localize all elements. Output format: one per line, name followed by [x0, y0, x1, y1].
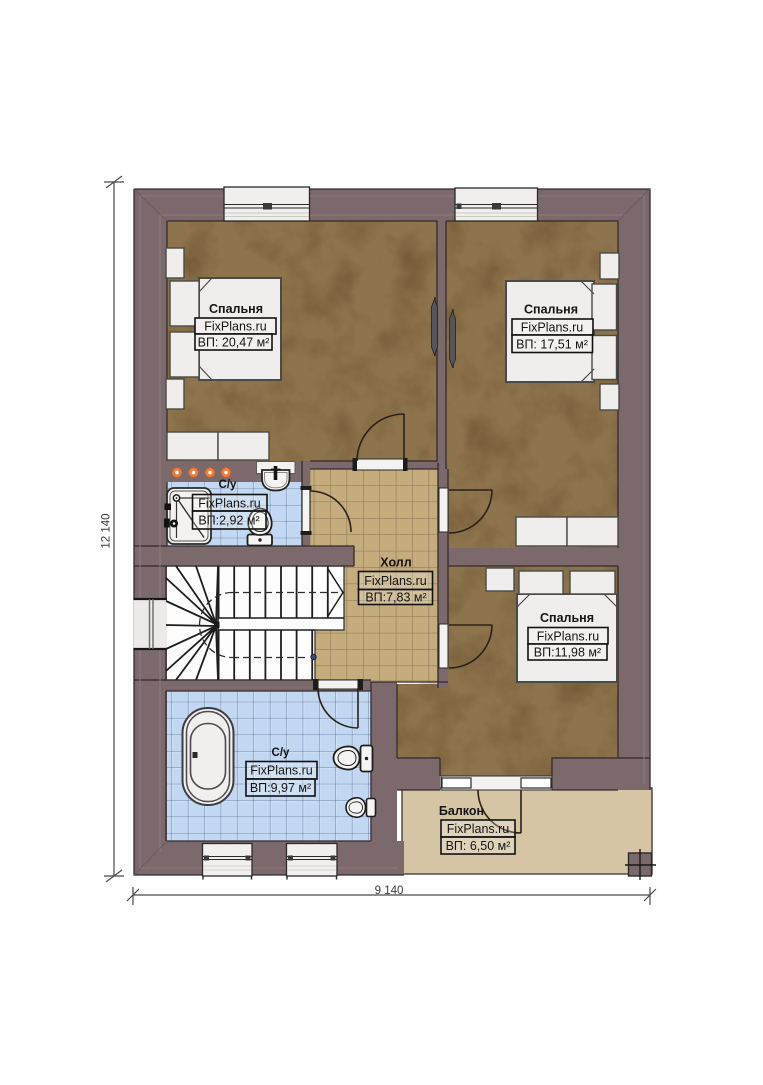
svg-text:С/у: С/у	[272, 747, 291, 759]
svg-text:ВП:7,83 м²: ВП:7,83 м²	[365, 591, 426, 605]
svg-text:FixPlans.ru: FixPlans.ru	[250, 764, 313, 778]
svg-text:ВП:11,98 м²: ВП:11,98 м²	[534, 646, 601, 660]
svg-text:ВП: 17,51 м²: ВП: 17,51 м²	[516, 338, 588, 352]
svg-text:Спальня: Спальня	[524, 303, 578, 317]
svg-text:9 140: 9 140	[375, 885, 404, 897]
svg-text:FixPlans.ru: FixPlans.ru	[537, 630, 600, 644]
svg-text:ВП: 20,47 м²: ВП: 20,47 м²	[198, 336, 270, 350]
svg-text:FixPlans.ru: FixPlans.ru	[364, 574, 427, 588]
svg-text:ВП:2,92 м²: ВП:2,92 м²	[198, 514, 259, 528]
svg-text:ВП: 6,50 м²: ВП: 6,50 м²	[446, 839, 511, 853]
svg-text:Спальня: Спальня	[209, 302, 263, 316]
svg-text:Балкон: Балкон	[439, 804, 484, 818]
svg-text:FixPlans.ru: FixPlans.ru	[447, 822, 510, 836]
svg-text:ВП:9,97 м²: ВП:9,97 м²	[250, 781, 311, 795]
svg-text:С/у: С/у	[219, 479, 238, 491]
svg-text:FixPlans.ru: FixPlans.ru	[521, 321, 584, 335]
svg-text:FixPlans.ru: FixPlans.ru	[198, 497, 261, 511]
svg-text:12 140: 12 140	[101, 513, 113, 548]
svg-text:FixPlans.ru: FixPlans.ru	[204, 320, 267, 334]
svg-text:Холл: Холл	[380, 556, 411, 570]
svg-text:Спальня: Спальня	[540, 611, 594, 625]
